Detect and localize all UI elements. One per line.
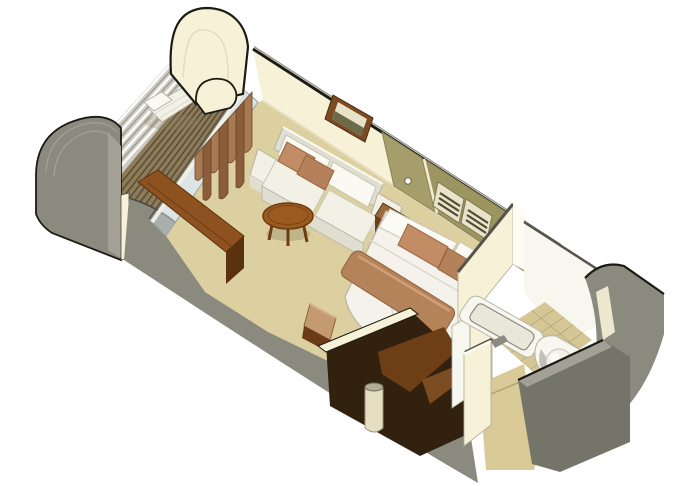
door-wall-end-cap — [196, 79, 236, 114]
stateroom-floorplan-rendering — [0, 0, 680, 486]
coffee-table — [263, 203, 313, 246]
floorplan-svg — [0, 0, 680, 486]
door-knob — [405, 178, 411, 184]
column-body — [365, 387, 383, 432]
bulkhead-inner-edge — [108, 132, 121, 258]
bath-near-wall-return — [513, 204, 524, 270]
hull-bulkhead — [36, 117, 121, 260]
column — [365, 383, 383, 432]
lounge-chair-shadow — [144, 114, 200, 130]
column-top — [365, 383, 383, 391]
table-top — [263, 203, 313, 229]
